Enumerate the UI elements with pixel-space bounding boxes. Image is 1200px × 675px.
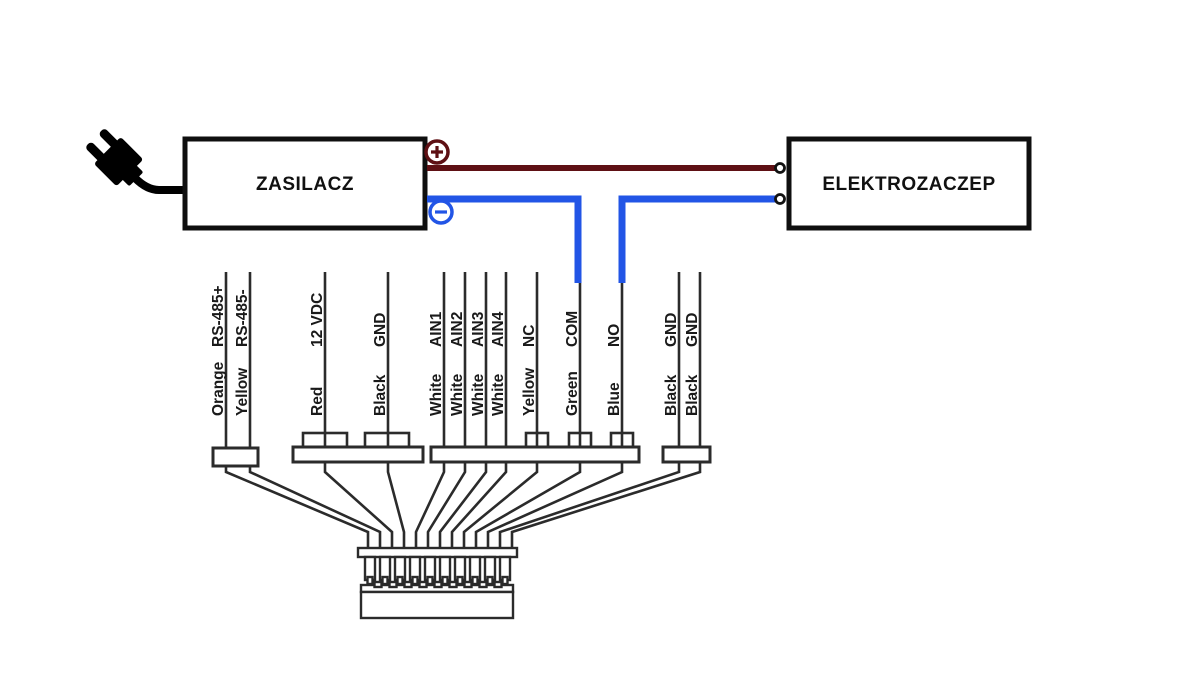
connector-top-bar bbox=[358, 548, 517, 557]
power-supply-label: ZASILACZ bbox=[256, 174, 354, 195]
positive-terminal-icon bbox=[426, 141, 448, 163]
wire-signal-label: RS-485- bbox=[234, 289, 251, 347]
terminal-block-gnd bbox=[663, 447, 710, 462]
wiring-diagram-page: ZASILACZ ELEKTROZACZEP RS-485+ Orange RS… bbox=[0, 0, 1200, 675]
wire-signal-label: AIN2 bbox=[449, 312, 466, 347]
wire-signal-label: 12 VDC bbox=[309, 293, 326, 347]
strike-negative-terminal-icon bbox=[776, 195, 785, 204]
power-cord bbox=[135, 178, 187, 190]
wire-signal-label: AIN4 bbox=[490, 311, 507, 347]
terminal-block-io bbox=[431, 447, 639, 462]
no-wire-to-strike bbox=[622, 199, 776, 283]
terminal-block-power bbox=[293, 447, 423, 462]
wire-color-label: White bbox=[428, 373, 445, 416]
wire-color-label: Yellow bbox=[234, 367, 251, 416]
wire-signal-label: NC bbox=[521, 325, 538, 347]
wire-signal-label: GND bbox=[684, 313, 701, 347]
strike-positive-terminal-icon bbox=[776, 164, 785, 173]
electric-strike-label: ELEKTROZACZEP bbox=[822, 174, 995, 195]
harness-wire-ain1: AIN1 White bbox=[416, 272, 445, 548]
terminal-block-rs485 bbox=[213, 448, 258, 466]
wire-color-label: Blue bbox=[606, 382, 623, 416]
wire-color-label: White bbox=[490, 373, 507, 416]
wire-signal-label: RS-485+ bbox=[210, 285, 227, 347]
wire-signal-label: GND bbox=[372, 313, 389, 347]
connector-pins bbox=[365, 557, 510, 584]
wire-color-label: Yellow bbox=[521, 367, 538, 416]
wire-color-label: Black bbox=[663, 374, 680, 416]
device-connector bbox=[358, 548, 517, 618]
wire-signal-label: AIN1 bbox=[428, 311, 445, 347]
wire-color-label: Orange bbox=[210, 361, 227, 416]
harness-wire-gnd-1: GND Black bbox=[372, 272, 404, 548]
wire-color-label: Black bbox=[372, 374, 389, 416]
wire-signal-label: AIN3 bbox=[470, 311, 487, 347]
wire-color-label: Green bbox=[564, 371, 581, 416]
wire-signal-label: GND bbox=[663, 313, 680, 347]
wire-color-label: Black bbox=[684, 374, 701, 416]
wiring-diagram: ZASILACZ ELEKTROZACZEP RS-485+ Orange RS… bbox=[0, 0, 1200, 675]
wire-signal-label: NO bbox=[606, 324, 623, 347]
negative-terminal-icon bbox=[430, 201, 452, 223]
wire-color-label: White bbox=[470, 373, 487, 416]
wire-color-label: White bbox=[449, 373, 466, 416]
harness-wire-no: NO Blue bbox=[488, 283, 623, 548]
wire-color-label: Red bbox=[309, 387, 326, 416]
wire-signal-label: COM bbox=[564, 311, 581, 347]
connector-body bbox=[361, 592, 513, 618]
power-plug-icon bbox=[81, 124, 187, 193]
